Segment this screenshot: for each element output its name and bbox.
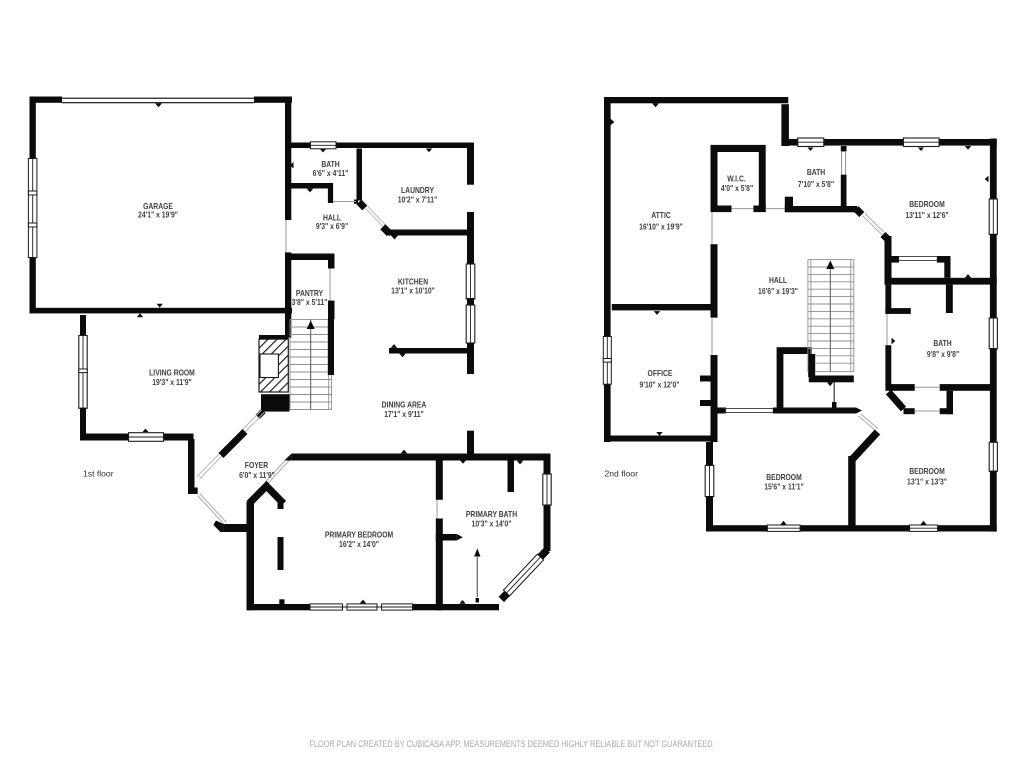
svg-text:1st floor: 1st floor — [83, 469, 114, 479]
svg-text:7'10" x 5'8": 7'10" x 5'8" — [798, 180, 835, 190]
svg-text:PRIMARY BEDROOM: PRIMARY BEDROOM — [325, 530, 393, 540]
svg-text:6'0" x 11'9": 6'0" x 11'9" — [239, 470, 275, 480]
svg-text:3'8" x 5'11": 3'8" x 5'11" — [292, 297, 328, 307]
svg-text:9'8" x 9'8": 9'8" x 9'8" — [927, 349, 960, 359]
svg-text:24'1" x 19'9": 24'1" x 19'9" — [138, 210, 178, 220]
svg-text:BATH: BATH — [933, 339, 951, 349]
svg-text:DINING AREA: DINING AREA — [382, 400, 427, 410]
svg-text:BATH: BATH — [807, 167, 825, 177]
svg-text:4'0" x 5'8": 4'0" x 5'8" — [721, 184, 754, 194]
svg-text:10'3" x 14'0": 10'3" x 14'0" — [472, 519, 512, 529]
svg-text:9'10" x 12'0": 9'10" x 12'0" — [640, 380, 680, 390]
svg-text:16'2" x 14'0": 16'2" x 14'0" — [339, 539, 379, 549]
svg-text:BEDROOM: BEDROOM — [909, 466, 944, 476]
svg-text:13'11" x 12'6": 13'11" x 12'6" — [905, 210, 949, 220]
svg-text:LIVING ROOM: LIVING ROOM — [149, 368, 195, 378]
svg-text:19'3" x 11'9": 19'3" x 11'9" — [152, 377, 192, 387]
svg-text:9'3" x 6'9": 9'3" x 6'9" — [316, 221, 349, 231]
svg-text:15'6" x 11'1": 15'6" x 11'1" — [764, 482, 804, 492]
svg-text:16'10" x 19'9": 16'10" x 19'9" — [639, 222, 683, 232]
svg-text:6'6" x 4'11": 6'6" x 4'11" — [313, 168, 349, 178]
svg-text:BEDROOM: BEDROOM — [909, 199, 944, 209]
svg-text:2nd floor: 2nd floor — [605, 468, 639, 478]
svg-text:HALL: HALL — [769, 275, 788, 285]
svg-text:W.I.C.: W.I.C. — [727, 174, 746, 184]
svg-text:10'2" x 7'11": 10'2" x 7'11" — [398, 195, 438, 205]
svg-text:ATTIC: ATTIC — [651, 211, 671, 221]
svg-text:16'6" x 19'3": 16'6" x 19'3" — [758, 286, 798, 296]
svg-text:LAUNDRY: LAUNDRY — [401, 186, 434, 196]
svg-text:BEDROOM: BEDROOM — [766, 472, 801, 482]
svg-text:17'1" x 9'11": 17'1" x 9'11" — [384, 409, 424, 419]
svg-text:PRIMARY BATH: PRIMARY BATH — [466, 509, 517, 519]
svg-text:FOYER: FOYER — [245, 460, 269, 470]
svg-text:13'1" x 10'10": 13'1" x 10'10" — [391, 286, 435, 296]
svg-text:13'1" x 13'3": 13'1" x 13'3" — [907, 477, 947, 487]
svg-text:FLOOR PLAN CREATED BY CUBICASA: FLOOR PLAN CREATED BY CUBICASA APP. MEAS… — [309, 739, 714, 749]
svg-text:OFFICE: OFFICE — [648, 369, 673, 379]
